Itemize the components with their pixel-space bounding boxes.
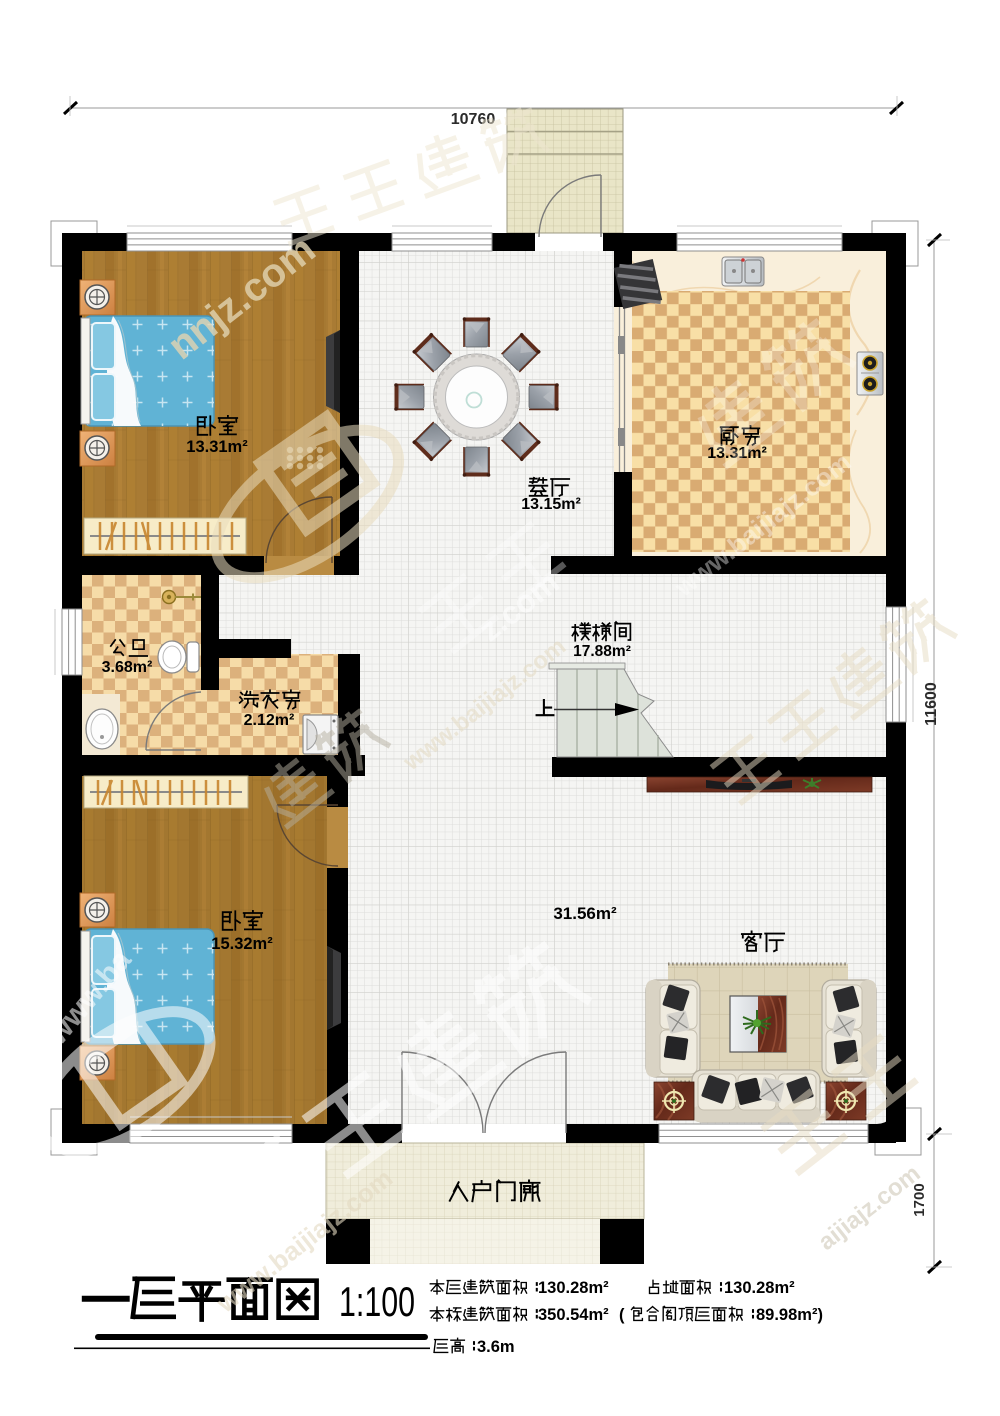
svg-text:1:100: 1:100 [339,1278,415,1325]
svg-text:1700: 1700 [911,1183,928,1216]
svg-text:aijiajz.com: aijiajz.com [813,1160,925,1256]
svg-text:3.6m: 3.6m [477,1338,515,1356]
svg-text:350.54m²: 350.54m² [538,1306,609,1324]
svg-text:13.31m²: 13.31m² [186,438,248,456]
svg-text:15.32m²: 15.32m² [211,935,273,953]
svg-text:17.88m²: 17.88m² [573,643,631,660]
svg-text:13.15m²: 13.15m² [521,496,581,513]
svg-text:10760: 10760 [451,111,496,128]
svg-text:3.68m²: 3.68m² [102,659,153,676]
svg-text:11600: 11600 [923,682,940,726]
svg-text:2.12m²: 2.12m² [244,712,295,729]
svg-text:31.56m²: 31.56m² [553,904,617,923]
svg-text:130.28m²: 130.28m² [538,1279,609,1297]
svg-text:(: ( [619,1306,625,1324]
svg-text:130.28m²: 130.28m² [724,1279,795,1297]
svg-text:89.98m²): 89.98m²) [756,1306,823,1324]
svg-text:13.31m²: 13.31m² [707,445,767,462]
